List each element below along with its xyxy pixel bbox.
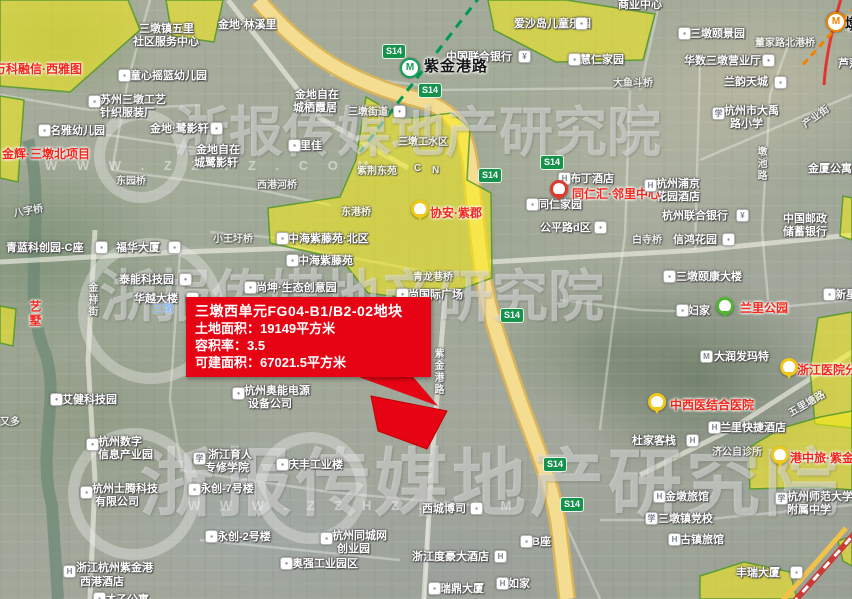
project-label: 艺墅 (27, 300, 44, 328)
poi-building-icon: ▪ (790, 566, 803, 579)
project-label: 兰里公园 (740, 299, 788, 316)
poi-building-icon: ▪ (722, 233, 735, 246)
poi-pin-icon (780, 358, 798, 376)
map-label: 紫荆东苑 (357, 162, 397, 177)
poi-building-icon: • (762, 54, 775, 67)
poi-building-icon: ▪ (594, 221, 607, 234)
poi-building-icon: ▪ (774, 76, 787, 89)
poi-building-icon: ▪ (118, 69, 131, 82)
poi-building-icon: ▪ (526, 198, 539, 211)
map-label: 专修学院 (205, 459, 249, 475)
map-label: 名雅幼儿园 (50, 122, 105, 138)
project-label: 万科融信·西雅图 (0, 60, 82, 77)
road-badge-s14: S14 (500, 308, 524, 323)
map-label: 里佳 (300, 137, 322, 153)
map-label: 济公自诊所 (712, 443, 762, 458)
map-label: 新星 (835, 286, 852, 302)
poi-building-icon: ▪ (93, 592, 106, 599)
poi-building-icon: ▪ (210, 122, 223, 135)
map-label: 储蓄银行 (783, 223, 827, 239)
map-label: 浙江度豪大酒店 (412, 548, 489, 564)
map-label: 花园酒店 (656, 188, 700, 204)
poi-building-icon: ▪ (678, 27, 691, 40)
map-label: 永创-2号楼 (217, 528, 271, 544)
map-label: 金地·鹭影轩 (150, 120, 209, 136)
map-label: 才子公寓 (105, 591, 149, 599)
map-label: 墩 (845, 13, 852, 34)
map-label: 社区服务中心 (133, 33, 199, 49)
map-label: 三墩工水区 (398, 133, 448, 148)
parcel-land-area: 土地面积：19149平方米 (195, 320, 423, 337)
map-label: 永创-7号楼 (200, 480, 254, 496)
map-label: 公平路d区 (540, 219, 591, 235)
map-label: 如家 (508, 575, 530, 591)
poi-building-icon: ▪ (428, 582, 441, 595)
poi-hotel-icon: H (708, 421, 721, 434)
parcel-infobox: 三墩西单元FG04-B1/B2-02地块 土地面积：19149平方米 容积率：3… (186, 297, 431, 377)
poi-building-icon: ▪ (80, 486, 93, 499)
map-label: 三墩 (152, 300, 174, 316)
project-label: 中西医结合医院 (670, 396, 754, 413)
poi-building-icon: ▪ (38, 124, 51, 137)
map-label: 西港酒店 (80, 573, 124, 589)
poi-building-icon: • (280, 557, 293, 570)
poi-building-icon: ▪ (575, 17, 588, 30)
poi-building-icon: ▪ (276, 232, 289, 245)
poi-hotel-icon: H (496, 577, 509, 590)
poi-building-icon: ▪ (205, 530, 218, 543)
poi-building-icon: • (179, 273, 192, 286)
map-label: 泰能科技园 (119, 271, 174, 287)
map-label: 妇家 (688, 302, 710, 318)
map-label: 青龙巷桥 (413, 268, 453, 283)
metro-station-icon: M (400, 58, 420, 78)
poi-hotel-icon: H (494, 550, 507, 563)
poi-school-icon: 学 (193, 452, 206, 465)
map-label: 五里塘路 (785, 386, 827, 419)
map-canvas[interactable]: 浙报传媒地产研究院 浙报传媒地产研究院 浙报传媒地产研究院 W W W . Z … (0, 0, 852, 599)
poi-building-icon: ▪ (95, 241, 108, 254)
map-label: 附属中学 (787, 501, 831, 517)
poi-building-icon: ▪ (676, 304, 689, 317)
map-label: 慧仁家园 (580, 51, 624, 67)
map-label: 中海紫藤苑 (298, 252, 353, 268)
project-label: 港中旅·紫金 (790, 449, 852, 466)
map-label: 芦荡 (838, 55, 852, 71)
map-label: N (432, 165, 439, 176)
road-badge-s14: S14 (560, 497, 584, 512)
map-label: 大润发玛特 (714, 348, 769, 364)
poi-school-icon: 学 (712, 107, 725, 120)
map-label: 信鸿花园 (673, 231, 717, 247)
map-label: 华数三墩营业厅 (684, 52, 761, 68)
map-label: 中海紫藤苑·北区 (288, 230, 369, 246)
road-badge-s14: S14 (540, 155, 564, 170)
map-label: 大鱼斗桥 (613, 74, 653, 89)
map-label: 城栖霞居 (293, 99, 337, 115)
poi-building-icon: ▪ (568, 53, 581, 66)
map-label: B座 (532, 533, 551, 549)
poi-building-icon: • (232, 387, 245, 400)
poi-pin-icon (771, 446, 789, 464)
map-label: 三墩颐康大楼 (676, 268, 742, 284)
poi-building-icon: ▪ (320, 532, 333, 545)
poi-building-icon: M (700, 350, 713, 363)
map-label: 白寺桥 (632, 231, 662, 246)
map-label: 丰瑞大厦 (736, 564, 780, 580)
poi-pin-icon (716, 297, 734, 315)
map-label: 创业园 (337, 540, 370, 556)
poi-hotel-icon: H (668, 533, 681, 546)
poi-building-icon: • (86, 438, 99, 451)
parcel-plot-ratio: 容积率：3.5 (195, 337, 423, 354)
map-label: 兰韵天城 (724, 73, 768, 89)
map-label: 有限公司 (95, 493, 139, 509)
poi-building-icon: ▪ (470, 502, 483, 515)
project-label: 金辉·三墩北项目 (2, 145, 90, 162)
map-label: 产业街 (798, 101, 831, 131)
map-label: 又多 (0, 413, 20, 428)
poi-building-icon: ▪ (823, 288, 836, 301)
map-label: 东港桥 (341, 203, 371, 218)
parcel-title: 三墩西单元FG04-B1/B2-02地块 (195, 302, 423, 320)
poi-hotel-icon: H (644, 179, 657, 192)
map-label: 杜家客栈 (632, 432, 676, 448)
map-label: 瑞鼎大厦 (440, 580, 484, 596)
poi-building-icon: ▪ (286, 254, 299, 267)
map-label: 路小学 (730, 115, 763, 131)
road-badge-s14: S14 (478, 168, 502, 183)
map-label: 紫金港路 (424, 55, 488, 76)
metro-station-icon: M (826, 12, 846, 32)
map-label: 八字桥 (12, 200, 44, 220)
map-label: 西城博司 (422, 500, 466, 516)
map-label: 信息产业园 (98, 446, 153, 462)
map-label: 童心摇篮幼儿园 (130, 67, 207, 83)
map-label: 西港河桥 (257, 176, 297, 191)
map-label: 奥强工业园区 (292, 555, 358, 571)
map-label: 针织服装厂 (100, 104, 155, 120)
poi-building-icon: ▪ (520, 535, 533, 548)
map-label: 三墩街道 (348, 103, 388, 118)
project-label: 浙江医院分 (797, 361, 852, 378)
poi-school-icon: 学 (775, 492, 788, 505)
poi-pin-icon (411, 200, 429, 218)
map-label: 设备公司 (248, 395, 292, 411)
project-label: 协安·紫郡 (430, 204, 482, 221)
map-label: 小王圩桥 (213, 230, 253, 245)
poi-building-icon: ▪ (168, 241, 181, 254)
map-label: 青蓝科创园-C座 (6, 239, 84, 255)
map-label: 董家路北港桥 (755, 34, 815, 49)
poi-pin-icon (648, 393, 666, 411)
road-badge-s14: S14 (382, 44, 406, 59)
poi-building-icon: • (393, 105, 406, 118)
map-label: 福华大厦 (116, 239, 160, 255)
poi-building-icon: ▪ (88, 95, 101, 108)
poi-hotel-icon: H (686, 434, 699, 447)
road-badge-s14: S14 (418, 83, 442, 98)
map-label: 墩池路 (753, 146, 768, 182)
poi-building-icon: • (50, 393, 63, 406)
map-label: C (414, 163, 421, 174)
map-label: 庆丰工业楼 (288, 456, 343, 472)
map-label: 紫金港路 (430, 348, 445, 396)
map-label: 兰里快捷酒店 (720, 419, 786, 435)
map-label: 城鹭影轩 (194, 154, 238, 170)
poi-pin-icon (550, 180, 568, 198)
map-label: 金祥街 (84, 282, 99, 318)
poi-building-icon: ▪ (276, 458, 289, 471)
poi-hotel-icon: H (653, 490, 666, 503)
poi-bank-icon: ¥ (736, 209, 749, 222)
map-label: 金厦公寓 (808, 160, 852, 176)
map-label: 艾健科技园 (62, 391, 117, 407)
poi-school-icon: 学 (645, 512, 658, 525)
parcel-buildable-area: 可建面积：67021.5平方米 (195, 354, 423, 371)
map-label: 古镇旅馆 (680, 531, 724, 547)
map-label: 金墩旅馆 (665, 488, 709, 504)
poi-building-icon: ▪ (663, 270, 676, 283)
map-label: 东园桥 (116, 172, 146, 187)
road-badge-s14: S14 (543, 457, 567, 472)
map-label: 三墩颐景园 (690, 25, 745, 41)
map-label: 商业中心 (618, 0, 662, 12)
map-label: 三墩镇党校 (658, 510, 713, 526)
map-label: 尚坤·生态创意园 (256, 279, 337, 295)
poi-building-icon: ▪ (288, 139, 301, 152)
map-label: 布丁酒店 (570, 170, 614, 186)
poi-building-icon: ▪ (244, 281, 257, 294)
map-label: 杭州联合银行 (662, 207, 728, 223)
poi-building-icon: ▪ (188, 483, 201, 496)
poi-hotel-icon: H (63, 565, 76, 578)
map-label: 金地·林溪里 (218, 16, 277, 32)
poi-bank-icon: ¥ (518, 50, 531, 63)
